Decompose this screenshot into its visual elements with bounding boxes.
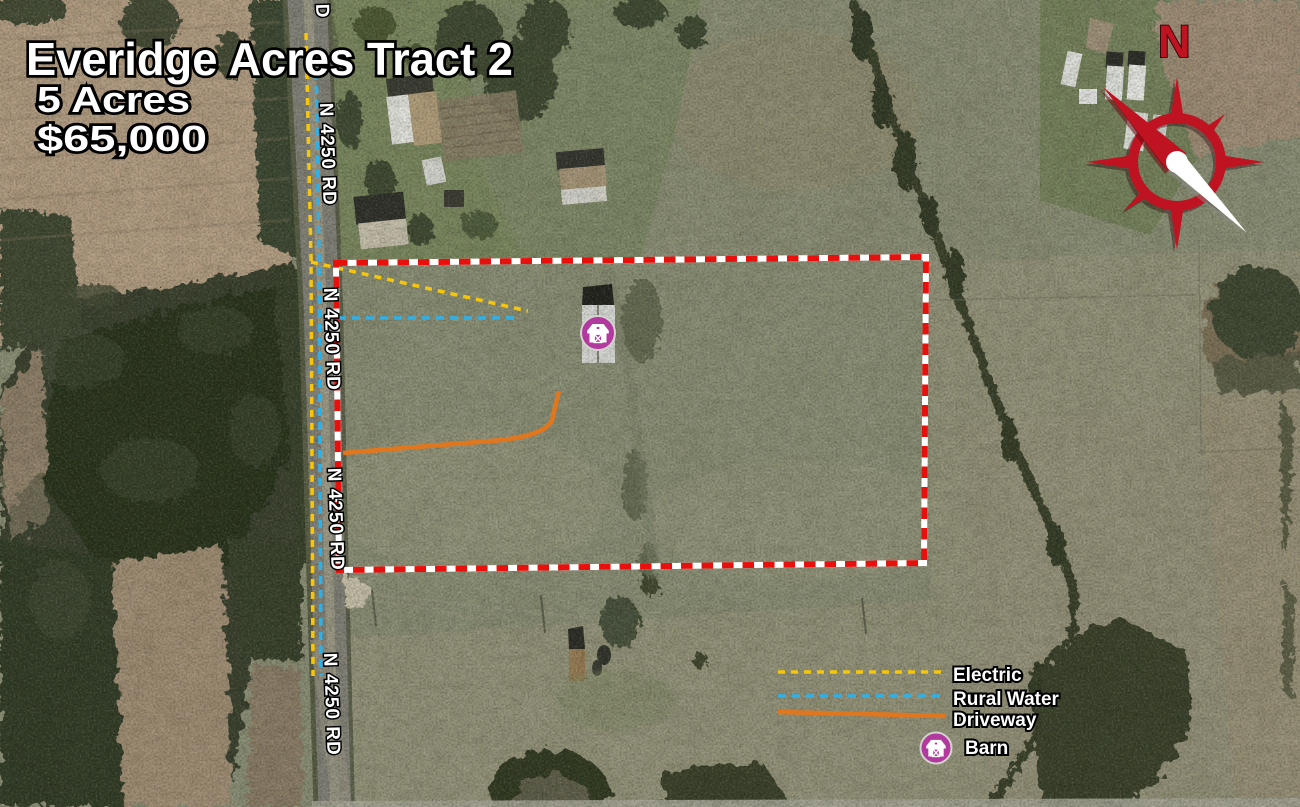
svg-text:Driveway: Driveway [953, 710, 1037, 731]
svg-text:5 Acres: 5 Acres [37, 79, 190, 120]
svg-text:Everidge Acres Tract 2: Everidge Acres Tract 2 [26, 33, 513, 85]
svg-text:Rural Water: Rural Water [953, 689, 1060, 710]
svg-text:$65,000: $65,000 [37, 118, 207, 159]
svg-text:Barn: Barn [965, 738, 1008, 759]
svg-text:N 4250 RD: N 4250 RD [319, 287, 344, 391]
svg-text:N 4250 RD: N 4250 RD [315, 102, 340, 206]
svg-text:N 4250 RD: N 4250 RD [319, 652, 344, 756]
svg-text:N: N [1158, 16, 1191, 67]
svg-text:D: D [311, 3, 333, 18]
svg-text:Electric: Electric [953, 665, 1022, 686]
svg-text:N 4250 RD: N 4250 RD [323, 467, 348, 571]
